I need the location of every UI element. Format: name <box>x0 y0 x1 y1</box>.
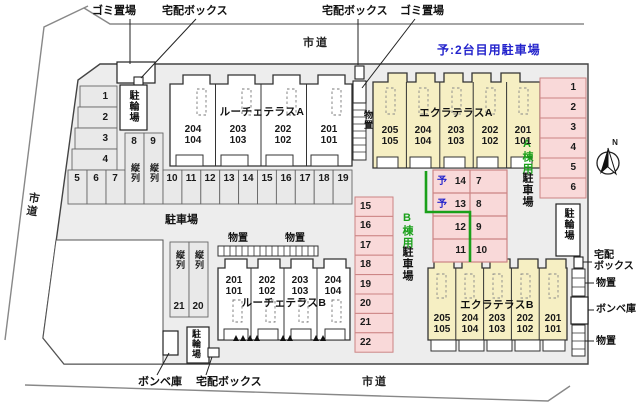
building-luce-a <box>170 75 352 166</box>
parking-space-number: 8 <box>476 199 496 210</box>
parking-space-number: 16 <box>277 173 295 184</box>
parking-space-number: 9 <box>476 222 496 233</box>
unit-number: 203 103 <box>482 314 512 335</box>
site-plan-drawing <box>0 0 640 415</box>
building-title-eclat-b: エクラテラスB <box>442 300 552 311</box>
garbage-box-top-right <box>353 81 366 103</box>
unit-number: 202 102 <box>475 126 505 147</box>
unit-number: 204 104 <box>408 126 438 147</box>
unit-number: 204 104 <box>455 314 485 335</box>
parking-space-number: 15 <box>360 201 380 212</box>
parking-space-number: 6 <box>556 182 576 193</box>
cylinder-label-right: ボンベ庫 <box>596 304 636 316</box>
storage-label-luce-b-1: 物置 <box>228 233 248 245</box>
delivery-label-top-left: 宅配ボックス <box>162 5 228 17</box>
delivery-box-bottom <box>208 348 219 357</box>
storage-label-right-2: 物置 <box>596 336 616 348</box>
parking-space-number: 9 <box>145 136 161 147</box>
parking-space-number: 13 <box>220 173 238 184</box>
parking-lot-label: 駐車場 <box>165 214 198 226</box>
tandem-label: 縦列 <box>148 163 159 183</box>
road-label-bottom: 市道 <box>362 376 388 388</box>
unit-number: 201 101 <box>219 276 249 297</box>
unit-number: 203 103 <box>285 276 315 297</box>
building-title-luce-a: ルーチェテラスA <box>207 107 317 118</box>
parking-space-number: 18 <box>315 173 333 184</box>
parking-space-number: 11 <box>182 173 200 184</box>
parking-space-number: 10 <box>163 173 181 184</box>
compass <box>597 148 619 174</box>
b-zone-label-green: B棟用 <box>401 212 413 249</box>
parking-space-number: 6 <box>88 173 104 184</box>
parking-space-number: 4 <box>556 142 576 153</box>
parking-space-number: 1 <box>556 82 576 93</box>
garbage-label-top-right: ゴミ置場 <box>400 5 444 17</box>
parking-space-number: 7 <box>476 176 496 187</box>
tandem-label: 縦列 <box>129 163 140 183</box>
parking-space-number: 15 <box>258 173 276 184</box>
building-eclat-a <box>373 73 540 168</box>
unit-number: 203 103 <box>441 126 471 147</box>
delivery-label-bottom: 宅配ボックス <box>196 376 262 388</box>
reserve-note: 予:2台目用駐車場 <box>437 44 541 56</box>
a-zone-label-black: 駐車場 <box>521 172 533 208</box>
parking-cells-a-column <box>540 78 586 198</box>
parking-space-number: 21 <box>360 317 380 328</box>
parking-space-number: 2 <box>556 102 576 113</box>
unit-number: 204 104 <box>318 276 348 297</box>
unit-number: 201 101 <box>314 125 344 146</box>
unit-number: 203 103 <box>223 125 253 146</box>
b-zone-label-black: 駐車場 <box>401 246 413 282</box>
parking-space-number: 10 <box>476 245 496 256</box>
parking-space-number: 19 <box>334 173 352 184</box>
unit-number: 205 105 <box>427 314 457 335</box>
compass-north-label: N <box>609 137 621 148</box>
unit-number: 202 102 <box>510 314 540 335</box>
road-bottom-line <box>25 385 570 401</box>
unit-number: 202 102 <box>268 125 298 146</box>
unit-number: 201 101 <box>508 126 538 147</box>
parking-space-number: 14 <box>446 176 466 187</box>
parking-space-number: 18 <box>360 259 380 270</box>
bike-shed-label-bottom: 駐輪場 <box>190 329 202 359</box>
parking-space-number: 13 <box>446 199 466 210</box>
road-label-top: 市道 <box>303 37 329 49</box>
storage-label-luce-b-2: 物置 <box>285 233 305 245</box>
parking-space-number: 5 <box>556 162 576 173</box>
parking-space-number: 14 <box>239 173 257 184</box>
bike-shed-label-top-left: 駐輪場 <box>126 90 138 123</box>
tandem-label: 縦列 <box>174 250 185 270</box>
parking-space-number: 2 <box>93 112 108 123</box>
parking-space-number: 11 <box>446 245 466 256</box>
parking-space-number: 12 <box>446 222 466 233</box>
storage-strip-right-2 <box>572 325 585 356</box>
parking-space-number: 21 <box>171 301 187 312</box>
building-title-eclat-a: エクラテラスA <box>401 108 511 119</box>
bike-shed-label-right: 駐輪場 <box>561 208 573 241</box>
parking-space-number: 8 <box>126 136 142 147</box>
storage-label-center: 物置 <box>362 110 374 130</box>
delivery-label-top-right: 宅配ボックス <box>322 5 388 17</box>
storage-strip-right-1 <box>572 269 585 296</box>
parking-space-number: 16 <box>360 220 380 231</box>
building-title-luce-b: ルーチェテラスB <box>229 298 339 309</box>
storage-strip-luce-b <box>218 246 318 256</box>
parking-space-number: 19 <box>360 279 380 290</box>
parking-space-number: 1 <box>93 91 108 102</box>
unit-number: 204 104 <box>178 125 208 146</box>
parking-space-number: 20 <box>360 298 380 309</box>
cylinder-box-bottom <box>163 331 178 355</box>
parking-space-number: 12 <box>201 173 219 184</box>
site-plan: ゴミ置場 宅配ボックス 宅配ボックス ゴミ置場 市道 市道 市道 予:2台目用駐… <box>0 0 640 415</box>
parking-space-number: 17 <box>360 240 380 251</box>
parking-space-number: 3 <box>93 133 108 144</box>
delivery-box-right <box>574 257 583 268</box>
unit-number: 202 102 <box>252 276 282 297</box>
parking-space-number: 3 <box>556 122 576 133</box>
unit-number: 201 101 <box>538 314 568 335</box>
garbage-label-top-left: ゴミ置場 <box>92 5 136 17</box>
parking-space-number: 4 <box>93 154 108 165</box>
open-area <box>43 240 163 364</box>
parking-space-number: 22 <box>360 337 380 348</box>
parking-space-number: 5 <box>69 173 85 184</box>
parking-space-number: 20 <box>190 301 206 312</box>
delivery-box-top-right <box>355 66 364 79</box>
cylinder-label-bottom: ボンベ庫 <box>138 376 182 388</box>
tandem-label: 縦列 <box>193 250 204 270</box>
parking-space-number: 17 <box>296 173 314 184</box>
unit-number: 205 105 <box>375 126 405 147</box>
parking-space-number: 7 <box>107 173 123 184</box>
delivery-label-right-line2: ボックス <box>594 261 634 273</box>
cylinder-box-right <box>571 297 588 324</box>
storage-label-right-1: 物置 <box>596 278 616 290</box>
